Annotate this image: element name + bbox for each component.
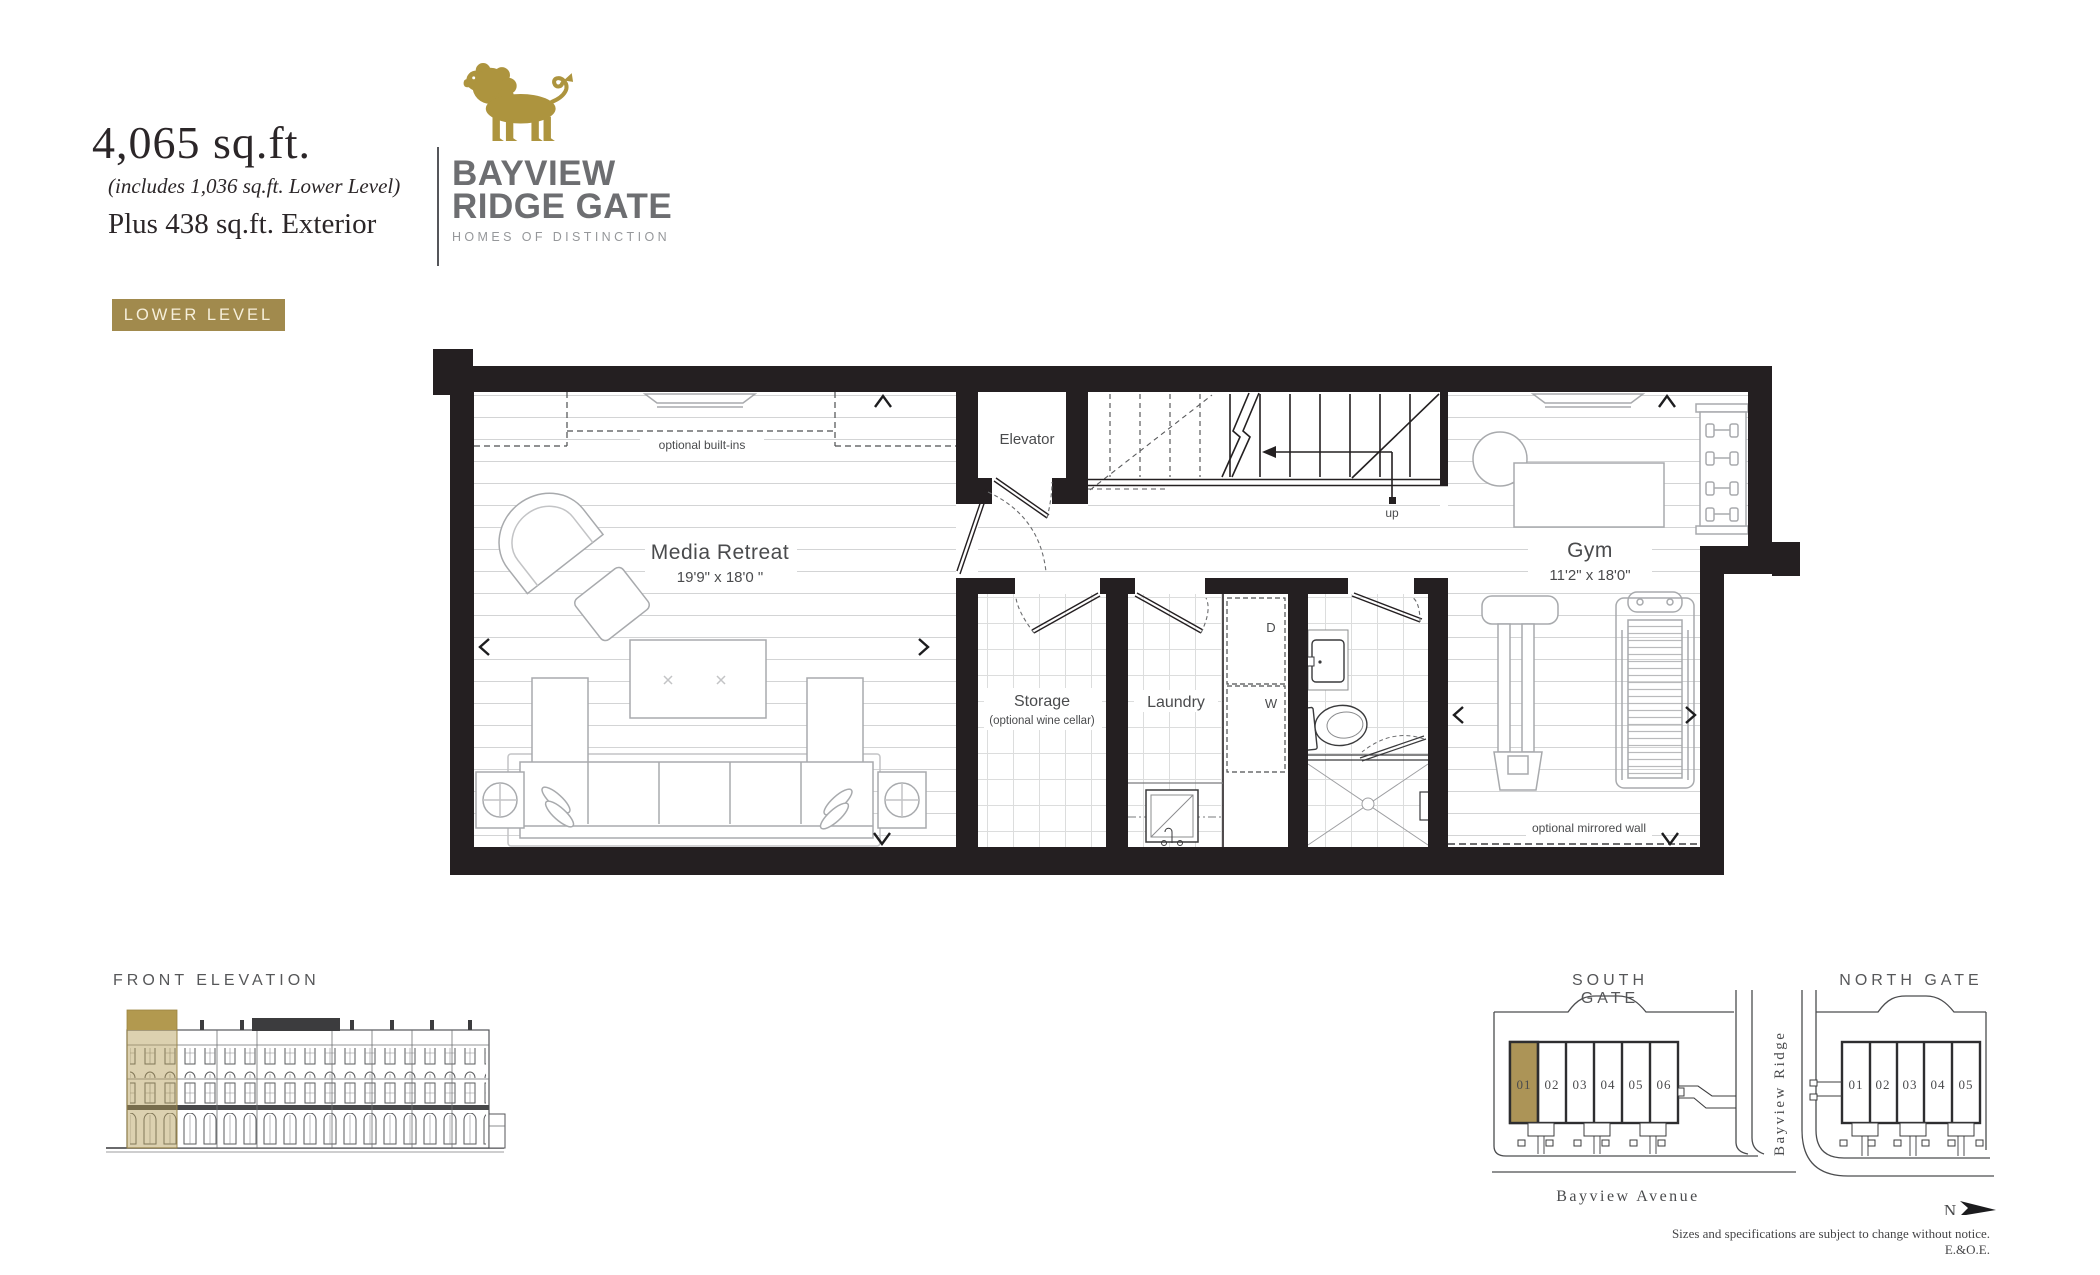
exterior-area: Plus 438 sq.ft. Exterior [108, 208, 400, 241]
gym-label: Gym [1567, 539, 1613, 562]
media-retreat-label: Media Retreat [651, 541, 789, 564]
south-unit-label: 04 [1601, 1077, 1616, 1092]
level-badge: LOWER LEVEL [112, 299, 285, 331]
front-elevation-title: FRONT ELEVATION [113, 972, 320, 990]
south-unit-label: 03 [1573, 1077, 1588, 1092]
logo-divider [437, 147, 439, 266]
washer-label: W [1265, 696, 1278, 711]
south-unit-label: 02 [1545, 1077, 1560, 1092]
north-unit-label: 05 [1959, 1077, 1974, 1092]
south-gate-units: 01 02 03 04 05 06 [1510, 1042, 1678, 1123]
north-arrow-icon [1960, 1201, 1996, 1215]
north-arrow-label: N [1944, 1201, 1956, 1215]
storage-note: (optional wine cellar) [989, 715, 1095, 727]
media-retreat-dims: 19'9" x 18'0 " [677, 569, 763, 586]
north-unit-label: 03 [1903, 1077, 1918, 1092]
floor-plan: optional built-ins [430, 345, 1820, 890]
elevator-label: Elevator [999, 431, 1054, 448]
south-unit-label: 05 [1629, 1077, 1644, 1092]
north-unit-label: 01 [1849, 1077, 1864, 1092]
gym-dims: 11'2" x 18'0" [1549, 567, 1630, 584]
south-unit-label: 01 [1517, 1077, 1532, 1092]
brand-logo: BAYVIEW RIDGE GATE HOMES OF DISTINCTION [452, 55, 712, 244]
elevation-unit-highlight [127, 1010, 177, 1148]
area-note: (includes 1,036 sq.ft. Lower Level) [108, 174, 400, 199]
lion-icon [452, 55, 580, 149]
optional-mirrored-wall-label: optional mirrored wall [1532, 821, 1646, 835]
optional-builtins-label: optional built-ins [659, 438, 746, 452]
brochure-page: 4,065 sq.ft. (includes 1,036 sq.ft. Lowe… [0, 0, 2100, 1275]
disclaimer: Sizes and specifications are subject to … [1650, 1226, 1990, 1258]
storage-label: Storage [1014, 693, 1070, 710]
area-summary: 4,065 sq.ft. (includes 1,036 sq.ft. Lowe… [92, 116, 400, 241]
site-plans: 01 02 03 04 05 06 01 02 [1480, 965, 2040, 1215]
dryer-label: D [1266, 620, 1275, 635]
total-area: 4,065 sq.ft. [92, 116, 400, 169]
stairs-up-label: up [1385, 506, 1399, 520]
street-bayview-avenue: Bayview Avenue [1556, 1188, 1700, 1205]
north-unit-label: 02 [1876, 1077, 1891, 1092]
brand-tagline: HOMES OF DISTINCTION [452, 230, 712, 244]
street-bayview-ridge: Bayview Ridge [1772, 1031, 1788, 1156]
brand-name-line2: RIDGE GATE [452, 190, 712, 223]
south-unit-label: 06 [1657, 1077, 1672, 1092]
front-elevation-drawing [100, 1002, 510, 1162]
brand-name-line1: BAYVIEW [452, 157, 712, 190]
laundry-label: Laundry [1147, 694, 1205, 711]
north-gate-units: 01 02 03 04 05 [1842, 1042, 1980, 1123]
north-unit-label: 04 [1931, 1077, 1946, 1092]
